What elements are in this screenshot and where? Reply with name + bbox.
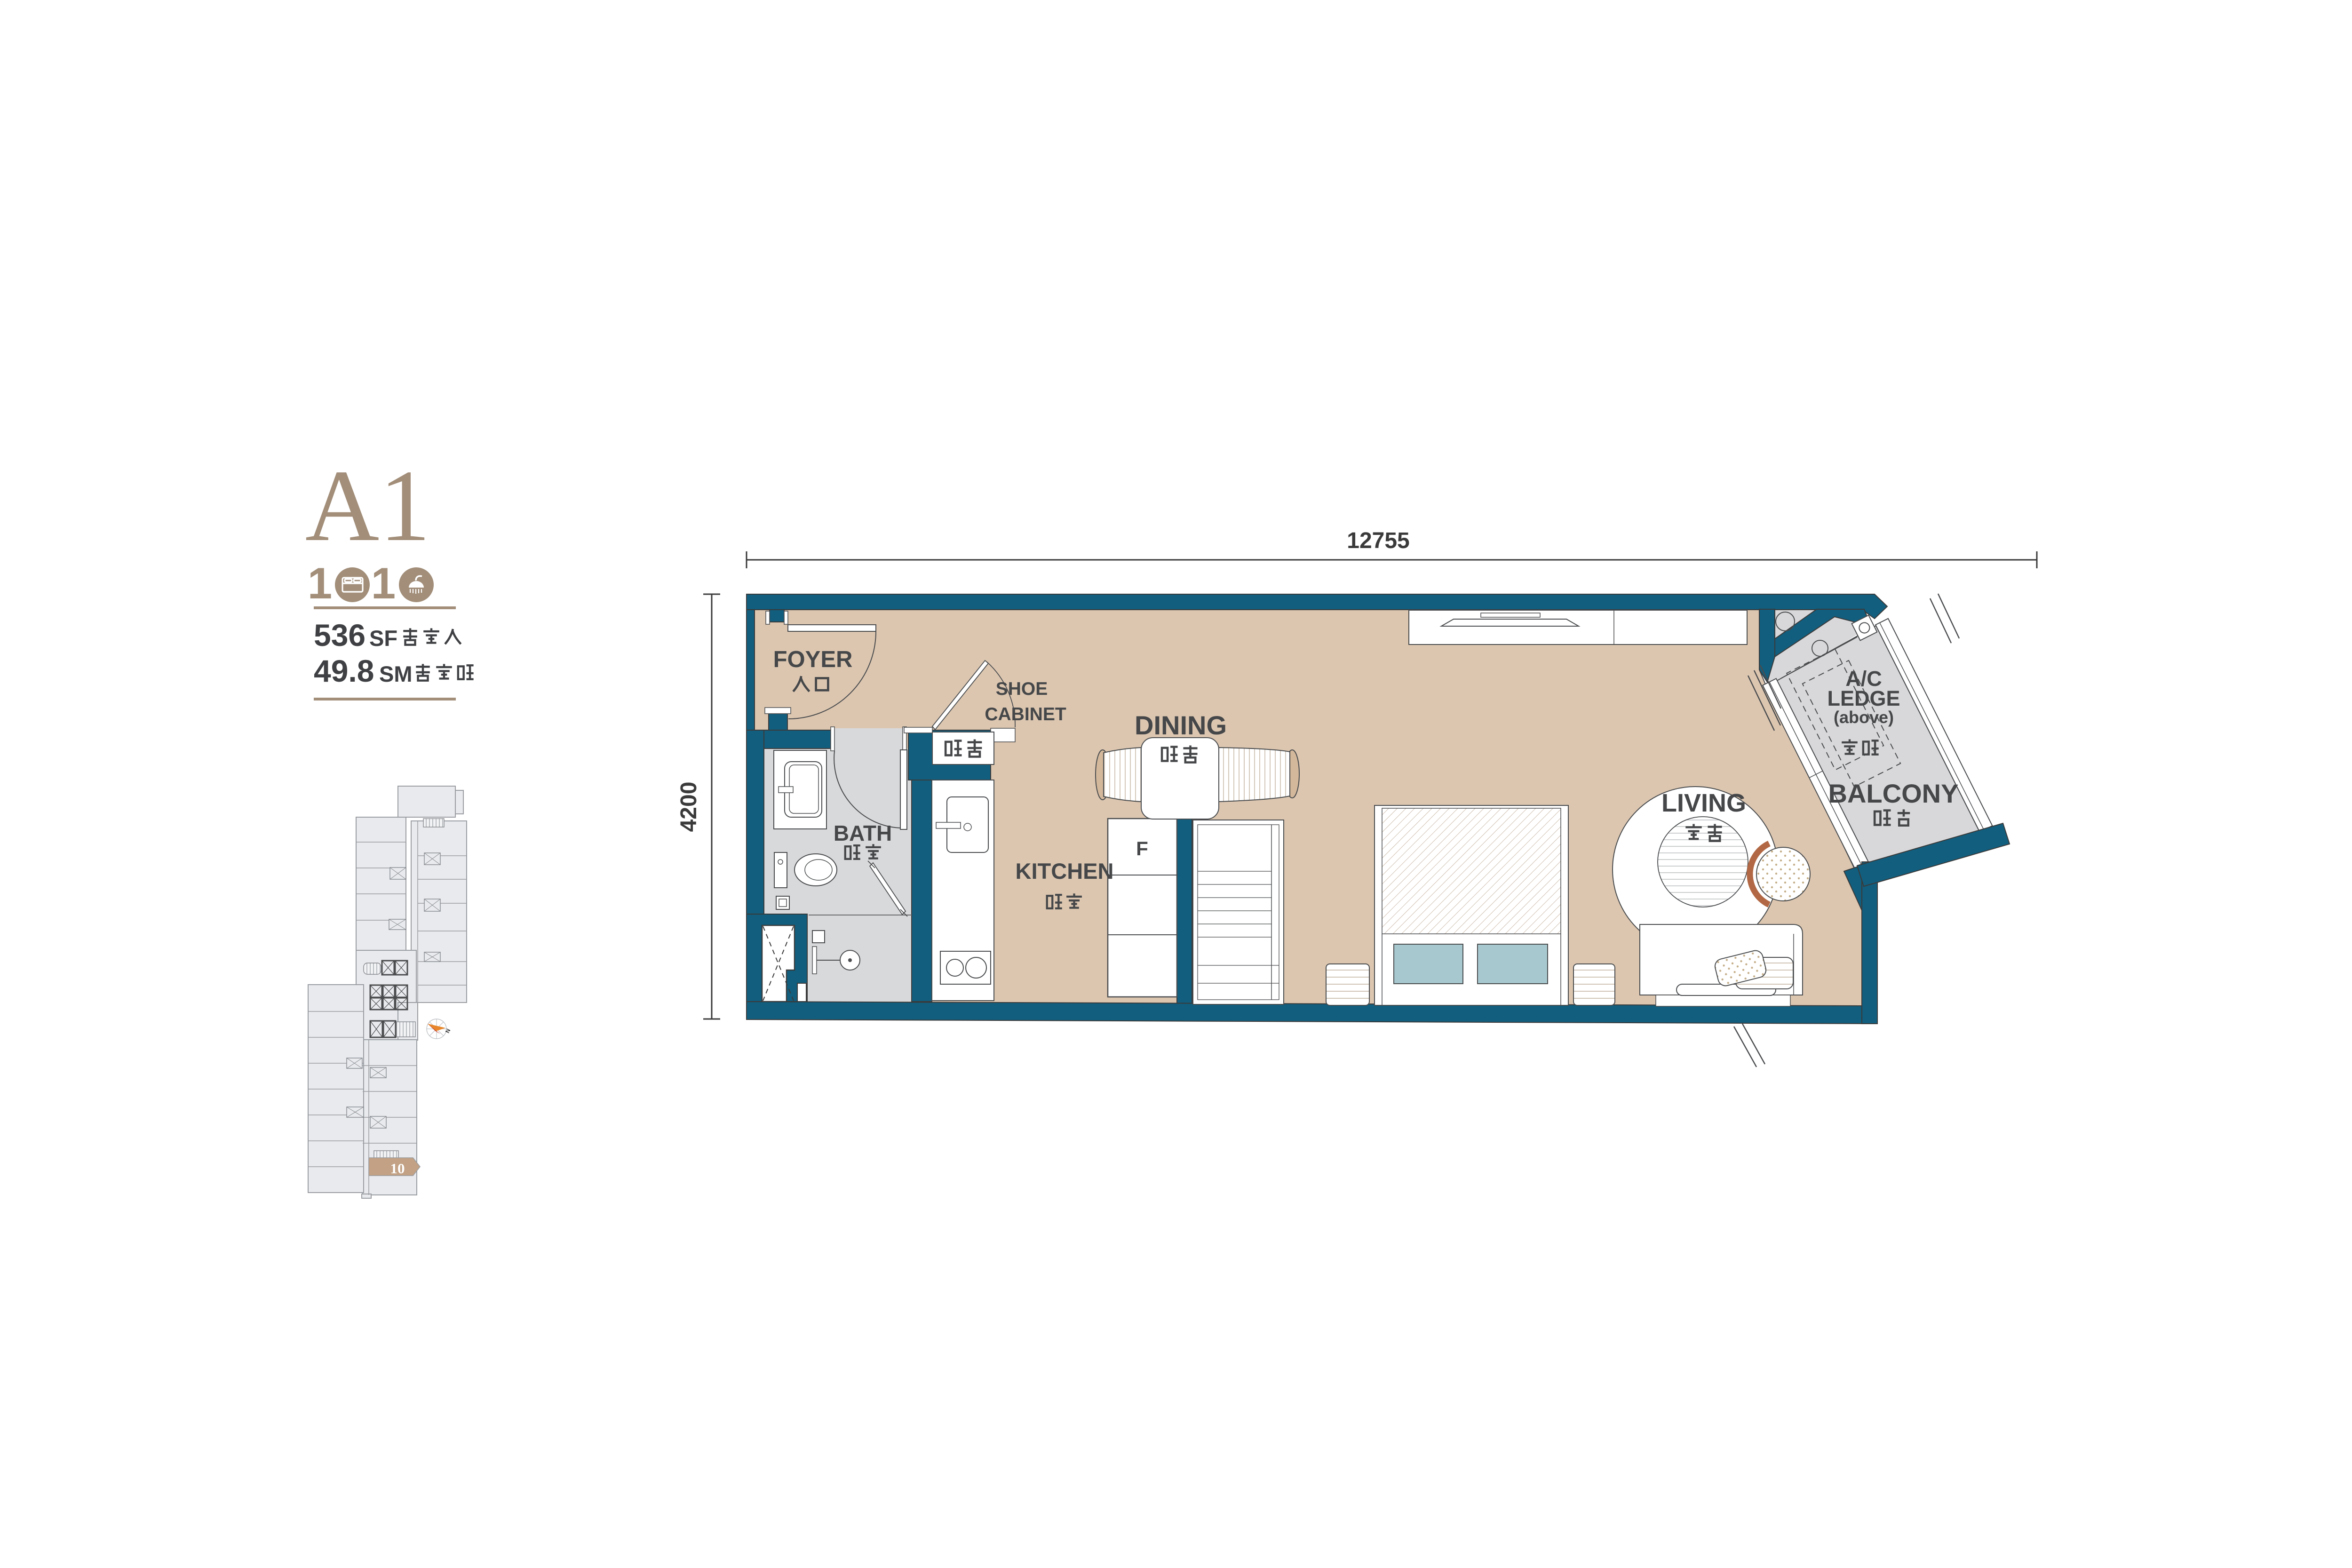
svg-text:(above): (above) (1834, 708, 1894, 727)
svg-text:DINING: DINING (1135, 710, 1227, 740)
svg-text:1: 1 (371, 558, 396, 608)
svg-text:536: 536 (314, 618, 366, 653)
svg-text:10: 10 (390, 1160, 405, 1177)
svg-text:BATH: BATH (834, 821, 892, 845)
svg-text:LIVING: LIVING (1661, 789, 1746, 817)
svg-text:A1: A1 (305, 449, 430, 563)
svg-text:FOYER: FOYER (773, 647, 853, 672)
svg-text:LEDGE: LEDGE (1827, 686, 1900, 710)
svg-text:BALCONY: BALCONY (1828, 779, 1959, 808)
svg-text:SHOE: SHOE (996, 679, 1048, 699)
svg-text:1: 1 (308, 558, 332, 608)
svg-text:4200: 4200 (676, 782, 701, 832)
svg-text:CABINET: CABINET (985, 704, 1066, 724)
svg-text:12755: 12755 (1347, 528, 1409, 553)
svg-text:49.8: 49.8 (314, 653, 374, 688)
svg-text:SF: SF (369, 626, 397, 651)
svg-text:SM: SM (379, 661, 413, 686)
svg-text:KITCHEN: KITCHEN (1016, 859, 1114, 883)
svg-text:F: F (1136, 837, 1148, 860)
